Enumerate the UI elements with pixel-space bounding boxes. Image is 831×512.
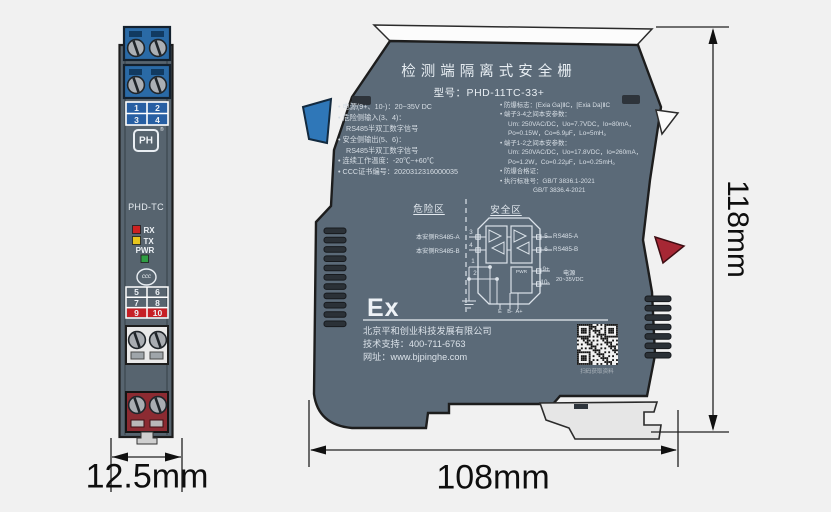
spec-line: RS485半双工数字信号	[338, 146, 458, 157]
spec-line: Um: 250VAC/DC，Uo=17.8VDC，Io=260mA，	[500, 148, 642, 157]
front-terminal-8: 8	[155, 298, 160, 308]
dim-label-front-width: 12.5mm	[86, 458, 209, 497]
terminal-block-bottom-white	[126, 326, 168, 364]
spec-line: • 端子1-2之间本安参数：	[500, 139, 642, 148]
screw-icon	[150, 40, 167, 57]
terminal-9: 9+	[542, 266, 549, 273]
spec-list-left: • 电源(9+、10-)：20~35V DC • 危险侧输入(3、4)： RS4…	[338, 102, 458, 178]
company-support: 技术支持：400-711-6763	[363, 338, 492, 351]
terminal-5: 5	[544, 233, 547, 240]
zone-label-hazard: 危险区	[413, 201, 445, 215]
product-dimension-diagram: 检测端隔离式安全栅 型号：PHD-11TC-33+ • 电源(9+、10-)：2…	[0, 0, 831, 512]
terminal-grid-top	[126, 102, 168, 125]
right-fins	[645, 296, 671, 358]
spec-line: • 危险侧输入(3、4)：	[338, 113, 458, 124]
circuit-input-a: 本安侧RS485-A	[416, 232, 460, 241]
blue-clip-tab	[303, 99, 331, 143]
screw-icon	[128, 40, 145, 57]
screw-icon	[128, 77, 145, 94]
rx-label: RX	[144, 226, 155, 235]
terminal-block-top-1	[124, 27, 170, 60]
screw-icon	[129, 332, 146, 349]
din-rail-foot	[540, 402, 661, 439]
circuit-input-b: 本安侧RS485-B	[416, 246, 460, 255]
dim-label-side-width: 108mm	[436, 459, 549, 498]
side-title: 检测端隔离式安全栅	[401, 60, 577, 81]
spec-line: • 执行标准号：GB/T 3836.1-2021	[500, 177, 642, 186]
circuit-out-b: RS485-B	[553, 246, 578, 253]
spec-line: GB/T 3836.4-2021	[500, 186, 642, 195]
terminal-4: 4	[469, 242, 472, 249]
rx-led-icon	[133, 226, 141, 234]
spec-line: Po=0.15W，Co=6.9μF，Lo=5mH。	[500, 129, 642, 138]
front-terminal-9: 9	[134, 308, 139, 318]
terminal-b-minus: B-	[507, 309, 513, 315]
company-info: 北京平和创业科技发展有限公司 技术支持：400-711-6763 网址：www.…	[363, 325, 492, 364]
spec-list-right: • 防爆标志：[Exia Ga]ⅡC，[Exia Da]ⅡC • 端子3-4之间…	[500, 101, 642, 195]
front-model-label: PHD-TC	[128, 202, 164, 212]
screw-icon	[129, 397, 146, 414]
terminal-e: E	[498, 309, 502, 315]
pwr-box-label: PWR	[516, 270, 527, 275]
side-model: 型号：PHD-11TC-33+	[434, 85, 545, 100]
terminal-1: 1	[471, 258, 474, 265]
terminal-a-plus: A+	[516, 309, 523, 315]
spec-line: • CCC证书编号：2020312316000035	[338, 167, 458, 178]
power-label: 电源	[563, 268, 575, 277]
front-terminal-5: 5	[134, 287, 139, 297]
pwr-led-icon	[141, 255, 149, 263]
terminal-block-top-2	[124, 65, 170, 98]
spec-line: • 端子3-4之间本安参数：	[500, 110, 642, 119]
left-fins	[324, 228, 346, 327]
spec-line: • 电源(9+、10-)：20~35V DC	[338, 102, 458, 113]
terminal-2: 2	[473, 270, 476, 277]
front-terminal-3: 3	[134, 115, 139, 125]
terminal-10: 10-	[541, 279, 550, 286]
front-terminal-10: 10	[153, 308, 162, 318]
front-terminal-2: 2	[155, 103, 160, 113]
front-terminal-4: 4	[155, 115, 160, 125]
tx-led-icon	[133, 237, 141, 245]
qr-code	[577, 324, 618, 365]
qr-caption: 扫码获取资料	[580, 367, 614, 375]
screw-icon	[150, 332, 167, 349]
terminal-3: 3	[469, 229, 472, 236]
registered-mark: ®	[160, 127, 164, 133]
screw-icon	[150, 397, 167, 414]
spec-line: • 连续工作温度：-20℃~+60℃	[338, 156, 458, 167]
terminal-6: 6	[544, 246, 547, 253]
ccc-mark-text: ccc	[142, 274, 151, 280]
power-range: 20~35VDC	[556, 277, 584, 283]
front-terminal-1: 1	[134, 103, 139, 113]
company-name: 北京平和创业科技发展有限公司	[363, 325, 492, 338]
front-terminal-6: 6	[155, 287, 160, 297]
pwr-label: PWR	[136, 246, 155, 255]
front-view-device	[120, 27, 173, 444]
foot-slot	[574, 404, 588, 409]
spec-line: RS485半双工数字信号	[338, 124, 458, 135]
ex-mark: Ex	[367, 294, 400, 323]
ph-logo-text: PH	[139, 135, 153, 146]
red-clip-tab	[655, 237, 684, 263]
top-right-notch	[656, 110, 678, 134]
spec-line: • 安全侧输出(5、6)：	[338, 135, 458, 146]
spec-line: • 防爆合格证：	[500, 167, 642, 176]
zone-label-safe: 安全区	[490, 202, 522, 216]
spec-line: • 防爆标志：[Exia Ga]ⅡC，[Exia Da]ⅡC	[500, 101, 642, 110]
circuit-out-a: RS485-A	[553, 233, 578, 240]
terminal-block-bottom-red	[126, 392, 168, 432]
company-website: 网址：www.bjpinghe.com	[363, 351, 492, 364]
dim-label-side-height: 118mm	[720, 180, 754, 278]
spec-line: Po=1.2W，Co=0.22μF，Lo=0.25mH。	[500, 158, 642, 167]
tx-label: TX	[144, 237, 154, 246]
front-terminal-7: 7	[134, 298, 139, 308]
screw-icon	[150, 77, 167, 94]
spec-line: Um: 250VAC/DC，Uo=7.7VDC，Io=80mA，	[500, 120, 642, 129]
